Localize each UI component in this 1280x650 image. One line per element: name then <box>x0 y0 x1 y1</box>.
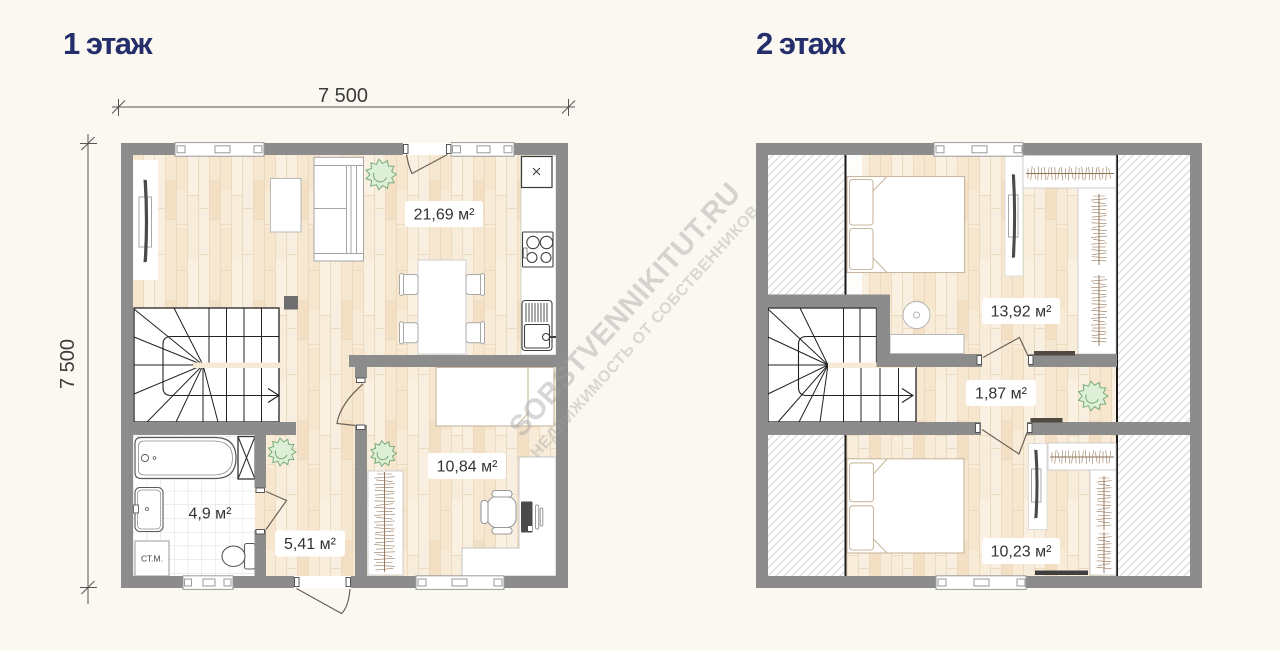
svg-text:2 этаж: 2 этаж <box>756 26 846 61</box>
svg-text:1,87 м²: 1,87 м² <box>975 386 1028 403</box>
svg-text:10,84 м²: 10,84 м² <box>437 459 498 476</box>
svg-text:4,9 м²: 4,9 м² <box>188 506 232 523</box>
svg-text:СТ.М.: СТ.М. <box>141 554 163 564</box>
svg-text:5,41 м²: 5,41 м² <box>284 536 337 553</box>
svg-text:7 500: 7 500 <box>57 339 79 389</box>
svg-text:21,69 м²: 21,69 м² <box>414 207 475 224</box>
svg-text:10,23 м²: 10,23 м² <box>991 544 1052 561</box>
svg-text:13,92 м²: 13,92 м² <box>991 304 1052 321</box>
svg-text:7 500: 7 500 <box>318 85 368 107</box>
svg-text:1 этаж: 1 этаж <box>63 26 153 61</box>
